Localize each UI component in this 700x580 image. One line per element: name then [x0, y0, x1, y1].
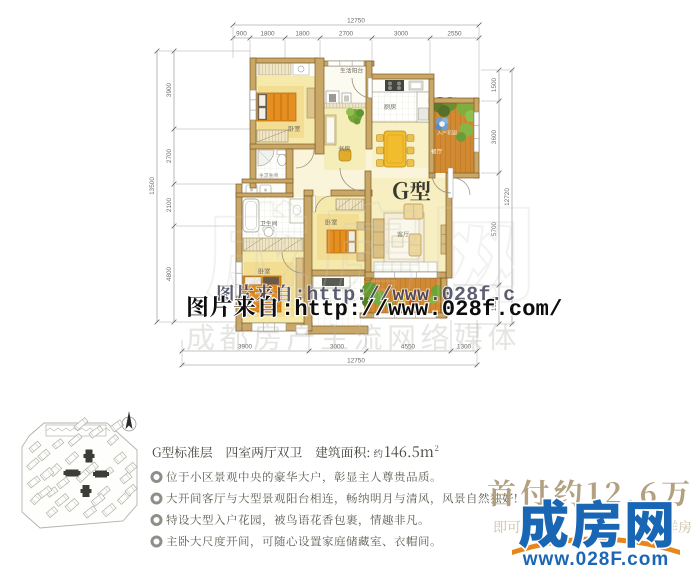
- svg-text:1800: 1800: [260, 31, 275, 38]
- svg-text:3900: 3900: [166, 82, 173, 97]
- svg-text:12720: 12720: [504, 188, 511, 206]
- svg-text:900: 900: [236, 31, 247, 38]
- svg-text:13500: 13500: [149, 177, 156, 195]
- svg-text:2550: 2550: [447, 31, 462, 38]
- svg-text:3000: 3000: [330, 344, 345, 351]
- svg-text:www.028F.com: www.028F.com: [522, 549, 669, 570]
- svg-text:12750: 12750: [347, 358, 365, 365]
- svg-text:1800: 1800: [295, 31, 310, 38]
- svg-text:3000: 3000: [394, 31, 409, 38]
- svg-text:2700: 2700: [339, 31, 354, 38]
- svg-text:12750: 12750: [347, 18, 365, 25]
- svg-text:3600: 3600: [491, 129, 498, 144]
- svg-text:2700: 2700: [166, 148, 173, 163]
- svg-text:4800: 4800: [166, 266, 173, 281]
- svg-text:1500: 1500: [491, 77, 498, 92]
- svg-text:2100: 2100: [166, 197, 173, 212]
